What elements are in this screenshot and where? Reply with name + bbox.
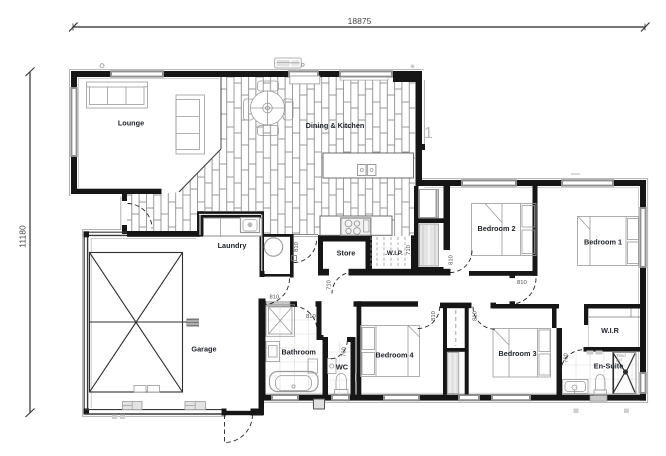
svg-text:710: 710 (327, 280, 333, 290)
svg-text:Prf: Prf (616, 358, 623, 363)
svg-text:W.I.R: W.I.R (601, 326, 620, 335)
svg-text:810: 810 (473, 311, 479, 321)
svg-text:710: 710 (406, 245, 412, 255)
svg-text:Store: Store (337, 249, 356, 258)
svg-text:WC: WC (336, 363, 349, 372)
svg-text:1: 1 (424, 125, 433, 142)
svg-text:810: 810 (517, 280, 527, 286)
svg-text:.W.I.P.: .W.I.P. (385, 250, 403, 257)
svg-text:18875: 18875 (348, 16, 372, 26)
svg-text:760: 760 (564, 353, 570, 363)
svg-text:Garage: Garage (191, 345, 216, 354)
svg-text:Bedroom 1: Bedroom 1 (584, 237, 622, 246)
svg-text:Laundry: Laundry (218, 241, 248, 250)
svg-text:810: 810 (294, 242, 300, 252)
svg-text:810: 810 (431, 311, 437, 321)
svg-text:Dining & Kitchen: Dining & Kitchen (306, 121, 365, 130)
svg-text:810: 810 (449, 255, 455, 265)
svg-text:810: 810 (306, 314, 316, 320)
svg-text:810: 810 (270, 294, 280, 300)
svg-text:Bedroom 3: Bedroom 3 (498, 349, 536, 358)
svg-text:11180: 11180 (18, 225, 28, 248)
svg-text:Bedroom 4: Bedroom 4 (375, 351, 414, 360)
svg-text:Lounge: Lounge (118, 119, 144, 128)
svg-text:Bedroom 2: Bedroom 2 (477, 224, 515, 233)
svg-text:Bathroom: Bathroom (281, 348, 316, 357)
svg-text:760: 760 (342, 347, 348, 357)
